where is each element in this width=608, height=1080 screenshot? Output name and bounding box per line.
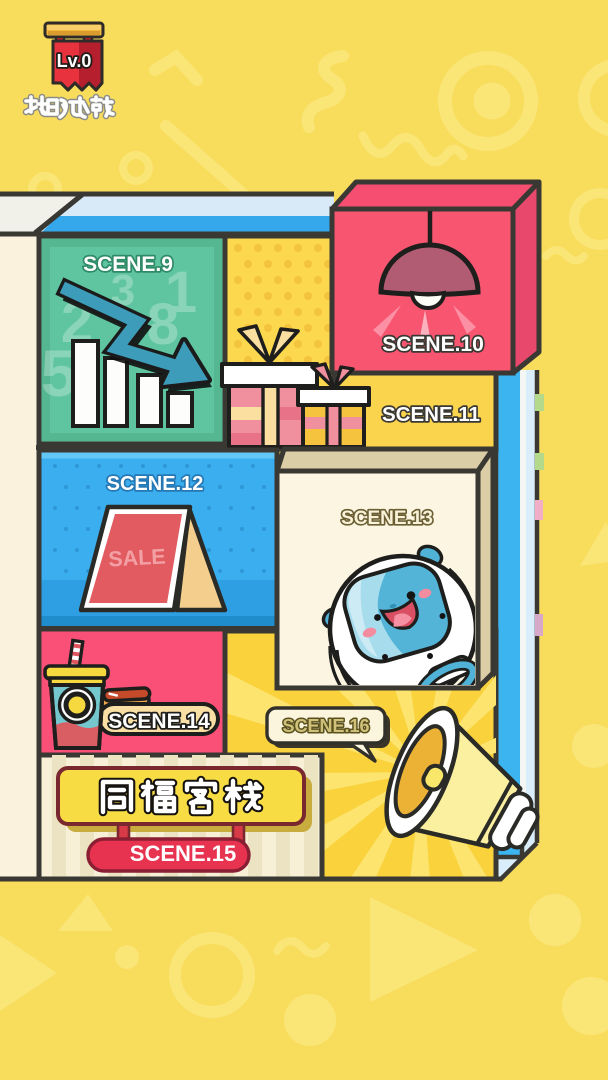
svg-text:SCENE.9: SCENE.9: [83, 253, 173, 276]
svg-text:SCENE.12: SCENE.12: [107, 473, 204, 495]
svg-text:SCENE.11: SCENE.11: [382, 403, 480, 426]
svg-text:8: 8: [147, 292, 179, 357]
svg-text:SCENE.10: SCENE.10: [382, 333, 484, 356]
svg-text:SCENE.16: SCENE.16: [282, 716, 369, 736]
svg-text:SALE: SALE: [108, 545, 167, 572]
svg-text:SCENE.13: SCENE.13: [341, 508, 433, 529]
svg-text:SCENE.14: SCENE.14: [108, 710, 210, 733]
svg-text:SCENE.15: SCENE.15: [130, 841, 236, 866]
svg-text:Lv.0: Lv.0: [57, 51, 92, 71]
